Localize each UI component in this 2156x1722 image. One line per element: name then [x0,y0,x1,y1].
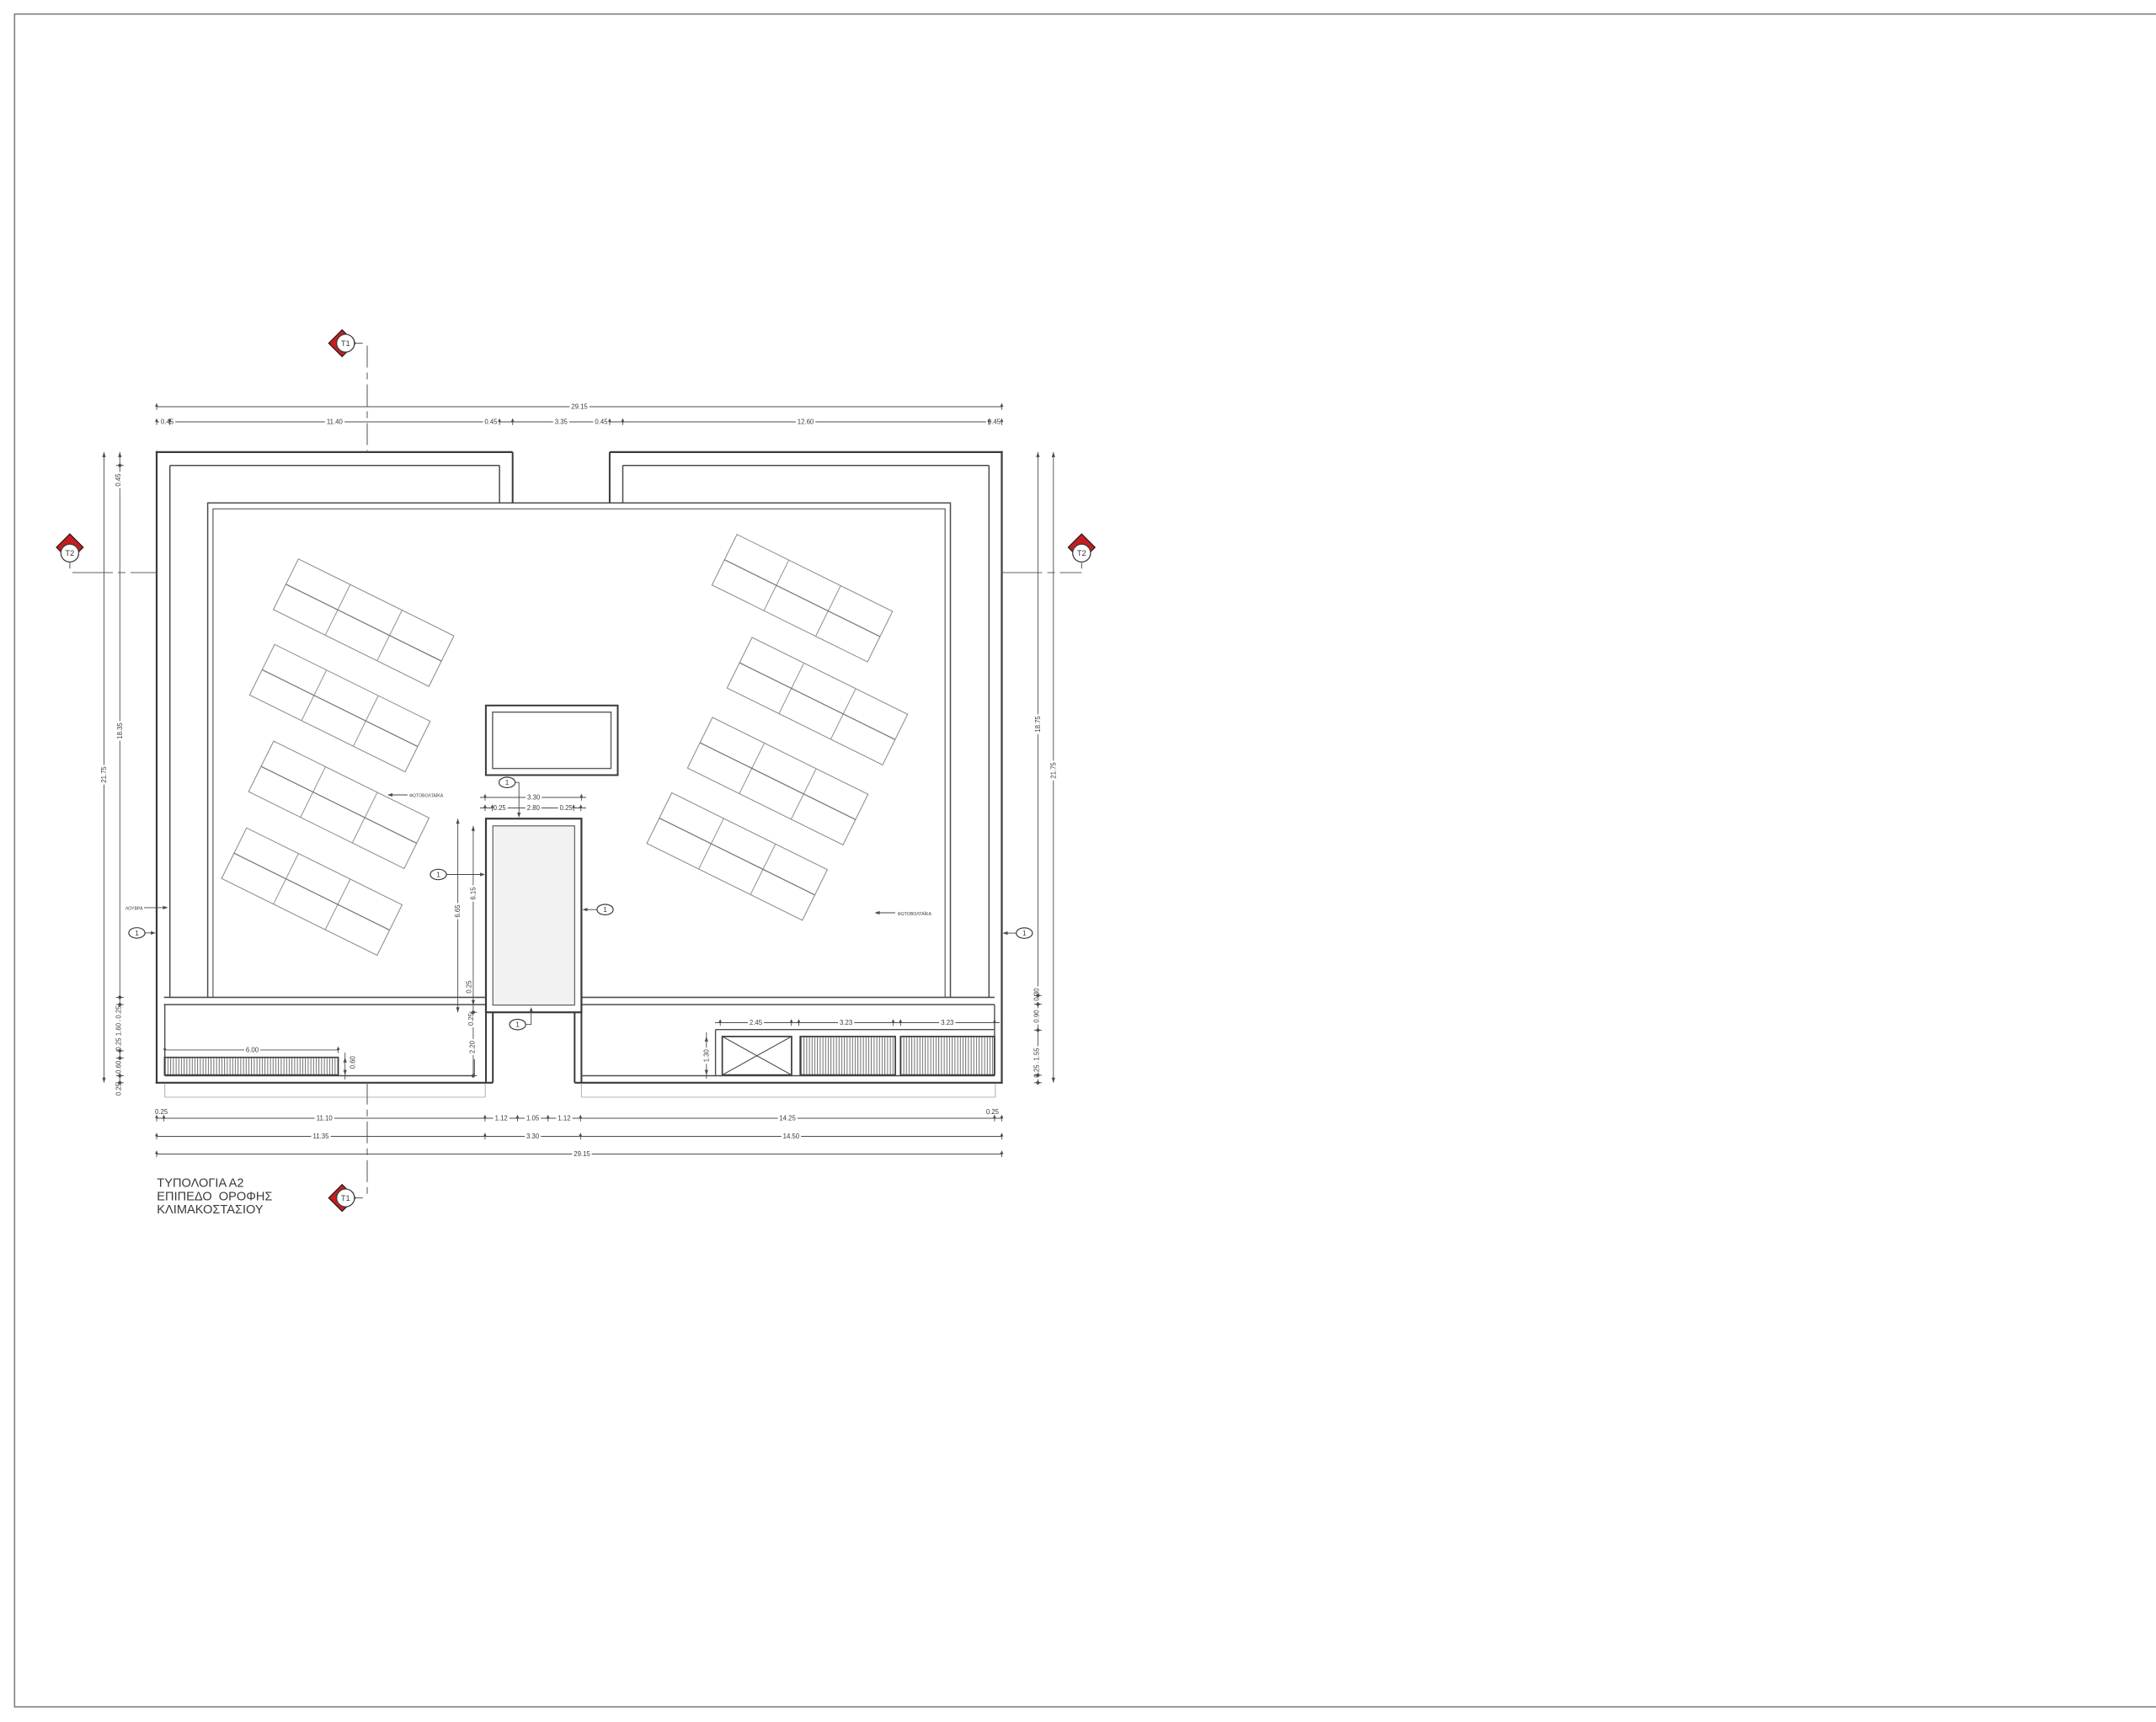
svg-text:14.25: 14.25 [779,1115,796,1122]
svg-text:ΦΩΤΟΒΟΛΤΑΪΚΑ: ΦΩΤΟΒΟΛΤΑΪΚΑ [898,911,932,917]
svg-text:29.15: 29.15 [574,1150,590,1158]
svg-text:3.23: 3.23 [840,1019,852,1026]
svg-text:12.60: 12.60 [798,419,814,426]
svg-text:3.30: 3.30 [526,1133,540,1140]
svg-text:1.55: 1.55 [1033,1048,1040,1061]
svg-text:11.40: 11.40 [327,419,344,426]
svg-text:0.45: 0.45 [161,419,174,426]
svg-text:0.25: 0.25 [115,1005,122,1019]
svg-text:2.20: 2.20 [469,1040,477,1053]
svg-text:0.25: 0.25 [115,1037,122,1051]
svg-text:29.15: 29.15 [571,403,588,411]
svg-text:1.60: 1.60 [115,1022,122,1036]
svg-text:1: 1 [436,870,440,878]
svg-text:ΦΩΤΟΒΟΛΤΑΪΚΑ: ΦΩΤΟΒΟΛΤΑΪΚΑ [409,793,444,799]
svg-text:T1: T1 [341,339,350,348]
svg-text:11.35: 11.35 [313,1133,330,1140]
svg-text:1.12: 1.12 [558,1115,570,1122]
svg-text:1: 1 [1022,929,1027,937]
svg-text:0.30: 0.30 [1033,988,1040,1001]
svg-text:2.45: 2.45 [750,1019,763,1026]
svg-text:T2: T2 [65,548,74,557]
svg-text:3.35: 3.35 [555,419,568,426]
svg-text:6.65: 6.65 [454,904,462,918]
svg-text:0.25: 0.25 [155,1108,168,1116]
svg-text:1: 1 [505,778,510,786]
svg-text:6.00: 6.00 [246,1047,259,1054]
svg-text:0.25: 0.25 [494,804,507,812]
svg-text:0.25: 0.25 [560,804,574,812]
svg-text:1: 1 [135,929,139,937]
svg-text:21.75: 21.75 [100,766,108,783]
svg-text:3.23: 3.23 [941,1019,953,1026]
svg-text:T1: T1 [341,1193,350,1202]
svg-text:0.25: 0.25 [115,1082,122,1096]
svg-text:3.30: 3.30 [527,794,541,802]
svg-text:0.60: 0.60 [349,1055,356,1069]
svg-text:T2: T2 [1077,548,1086,557]
svg-text:0.45: 0.45 [115,473,122,487]
svg-text:ΛΟΥΒΡΑ: ΛΟΥΒΡΑ [125,906,143,911]
svg-text:0.25: 0.25 [467,1012,475,1026]
svg-text:18.35: 18.35 [116,722,124,739]
svg-text:6.15: 6.15 [469,887,477,900]
svg-text:0.90: 0.90 [1033,1010,1040,1023]
svg-text:0.60: 0.60 [115,1060,122,1074]
svg-text:ΤΥΠΟΛΟΓΙΑ Α2: ΤΥΠΟΛΟΓΙΑ Α2 [157,1177,243,1191]
svg-text:11.10: 11.10 [317,1115,334,1122]
svg-text:14.50: 14.50 [783,1133,800,1140]
svg-text:0.25: 0.25 [466,980,473,994]
svg-text:1: 1 [603,905,607,914]
svg-text:0.45: 0.45 [595,419,608,426]
svg-text:1.12: 1.12 [495,1115,508,1122]
svg-text:18.75: 18.75 [1034,716,1042,733]
svg-text:ΚΛΙΜΑΚΟΣΤΑΣΙΟΥ: ΚΛΙΜΑΚΟΣΤΑΣΙΟΥ [157,1203,264,1217]
svg-text:21.75: 21.75 [1049,762,1057,779]
svg-text:1.05: 1.05 [526,1115,540,1122]
svg-text:ΕΠΙΠΕΔΟ ΟΡΟΦΗΣ: ΕΠΙΠΕΔΟ ΟΡΟΦΗΣ [157,1191,272,1204]
svg-text:0.45: 0.45 [484,419,498,426]
svg-text:1: 1 [515,1021,520,1029]
svg-text:1.30: 1.30 [702,1049,710,1063]
svg-text:0.25: 0.25 [986,1108,1000,1116]
svg-text:2.80: 2.80 [527,804,541,812]
